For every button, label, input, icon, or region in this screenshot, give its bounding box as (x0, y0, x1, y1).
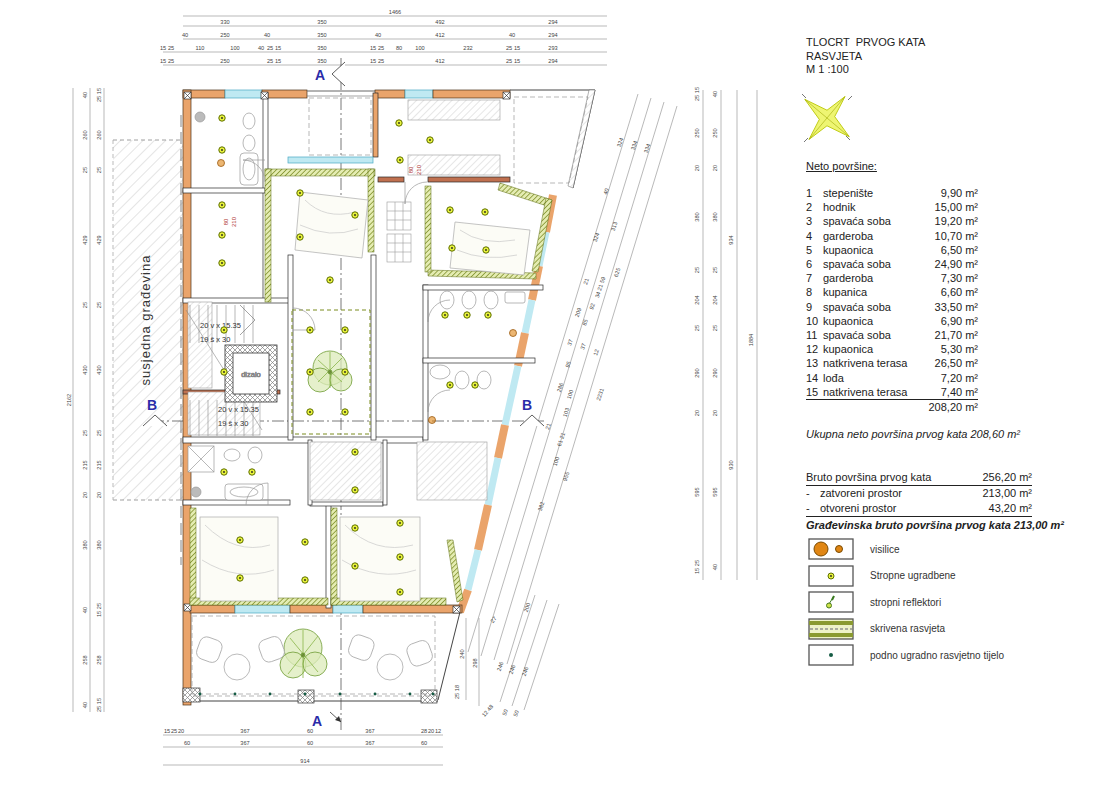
dimension-label: 298 (472, 658, 478, 667)
room-name: lođa (823, 371, 921, 385)
dimension-label: 25 (96, 430, 102, 436)
dimension-label: 12 (435, 728, 441, 734)
dimension-label: 100 (552, 456, 561, 467)
dimension-label: 15 (514, 58, 520, 64)
dimension-label: 429 (82, 235, 88, 244)
dimension-label: 258 (82, 655, 88, 664)
net-areas-table: 1 stepenište 9,90 m² 2 hodnik 15,00 m² 3… (806, 186, 978, 415)
room-area: 19,20 m² (921, 214, 978, 228)
ceiling-light-center (304, 541, 306, 543)
dimension-label: 80 (396, 45, 402, 51)
dimension-label: 293 (548, 45, 557, 51)
ceiling-light-center (221, 149, 223, 151)
room-number: 10 (806, 314, 823, 328)
dimension-label: 260 (96, 130, 102, 139)
dimension-label: 595 (712, 487, 718, 496)
dimension-label: 367 (365, 728, 374, 734)
dimension-label: 290 (712, 368, 718, 377)
ceiling-light-center (223, 329, 225, 331)
dimension-label: 25 (171, 728, 177, 734)
room-name: spavaća soba (823, 328, 921, 342)
dimension-label: 25 (82, 167, 88, 173)
ceiling-light-center (251, 471, 253, 473)
ceiling-light-center (354, 489, 356, 491)
room-area: 7,20 m² (921, 371, 978, 385)
dimension-label: 60 (184, 740, 190, 746)
ceiling-light-center (474, 384, 476, 386)
floor-light-icon (409, 693, 412, 696)
drawing-title-line1: TLOCRT PRVOG KATA (806, 36, 1102, 50)
room-name: kupanica (823, 285, 921, 299)
dimension-label: 294 (548, 58, 557, 64)
dimension-label: 20 (96, 492, 102, 498)
area-row: 1 stepenište 9,90 m² (806, 186, 978, 200)
dimension-label: 15 (275, 58, 281, 64)
room-number: 14 (806, 371, 823, 385)
dimension-label: 210 (416, 164, 422, 175)
dimension-label: 15 (514, 45, 520, 51)
dimension-label: 204 (694, 295, 700, 304)
dimension-label: 294 (548, 32, 557, 38)
net-areas-total-row: 208,20 m² (806, 400, 978, 415)
dimension-label: 250 (694, 128, 700, 137)
area-row: 15 natkrivena terasa 7,40 m² (806, 385, 978, 400)
dimension-label: 20 (712, 165, 718, 171)
dimension-label: 25 (712, 325, 718, 331)
svg-text:19 š x 30: 19 š x 30 (218, 419, 248, 428)
room-area: 7,40 m² (921, 385, 978, 399)
open-space-row: - otvoreni prostor43,20 m² (806, 501, 1032, 517)
dimension-label: 380 (96, 540, 102, 549)
room-area: 6,90 m² (921, 314, 978, 328)
dimension-label: 350 (317, 19, 326, 25)
ceiling-light-center (449, 384, 451, 386)
area-row: 5 kupaonica 6,50 m² (806, 243, 978, 257)
dimension-label: 25 15 (96, 698, 102, 712)
dimension-label: 250 (220, 32, 229, 38)
area-row: 4 garderoba 10,70 m² (806, 229, 978, 243)
dimension-label: 40 (509, 32, 515, 38)
dimension-label: 25 (96, 167, 102, 173)
dimension-label: 15 25 (96, 603, 102, 617)
floor-plan-drawing: { "title_block": {"line1": "TLOCRT PRVOG… (0, 0, 1102, 790)
ceiling-light-center (299, 192, 301, 194)
dimension-label: 324 (592, 232, 601, 243)
ceiling-light-center (354, 214, 356, 216)
dimension-label: 21 (544, 422, 552, 430)
room-name: kupaonica (823, 342, 921, 356)
floor-light-icon (339, 693, 342, 696)
neighbor-label: susjedna građevina (138, 255, 153, 386)
dimension-label: 20 (694, 165, 700, 171)
dimension-label: 25 (694, 325, 700, 331)
room-number: 7 (806, 271, 823, 285)
dimension-label: 12 (592, 348, 600, 356)
dimension-label: 40 (182, 32, 188, 38)
ceiling-light-center (354, 451, 356, 453)
dimension-label: 25 (82, 302, 88, 308)
dimension-label: 40 (82, 92, 88, 98)
dimension-label: 286 (556, 382, 565, 393)
dimension-label: 2162 (66, 394, 72, 406)
dimension-label: 246 (496, 661, 505, 672)
ceiling-light-center (309, 411, 311, 413)
dimension-label: 246 (521, 666, 530, 677)
ceiling-light-center (221, 117, 223, 119)
dimension-label: 25 15 (694, 87, 700, 101)
dimension-label: 15 25 (694, 560, 700, 574)
area-row: 12 kupaonica 5,30 m² (806, 342, 978, 356)
lighting-legend: visilice Stropne ugradbene stropni refle… (808, 536, 1004, 669)
section-b-right: B (522, 397, 532, 413)
dimension-label: 15 (160, 45, 166, 51)
ceiling-light-center (354, 565, 356, 567)
dimension-label: 25 (168, 58, 174, 64)
ceiling-light-center (429, 139, 431, 141)
dimension-label: 382 (537, 501, 546, 512)
closed-space-row: - zatvoreni prostor213,00 m² (806, 486, 1032, 501)
ceiling-light-center (221, 262, 223, 264)
area-row: 7 garderoba 7,30 m² (806, 271, 978, 285)
dimension-label: 25 (712, 267, 718, 273)
dimension-label: 25 (96, 302, 102, 308)
room-area: 6,50 m² (921, 243, 978, 257)
room-name: stepenište (823, 186, 921, 200)
ceiling-light-center (239, 539, 241, 541)
dimension-label: 367 (240, 740, 249, 746)
dimension-label: 25 (378, 58, 384, 64)
dimension-label: 215 (82, 460, 88, 469)
room-number: 5 (806, 243, 823, 257)
dimension-label: 1884 (748, 334, 754, 346)
dimension-label: 92 (588, 302, 596, 310)
room-name: spavaća soba (823, 214, 921, 228)
room-area: 33,50 m² (921, 300, 978, 314)
floor-light-icon (374, 693, 377, 696)
dimension-label: 50 (501, 708, 509, 716)
dimension-label: 20 (178, 728, 184, 734)
drawing-title-line2: RASVJETA (806, 50, 1102, 64)
section-b-left: B (147, 397, 157, 413)
dimension-label: 204 (712, 295, 718, 304)
room-number: 2 (806, 200, 823, 214)
dimension-label: 27 (489, 615, 498, 624)
dimension-label: 930 (728, 460, 734, 469)
pendant-lights-icon (808, 538, 854, 560)
dimension-label: 25 (506, 58, 512, 64)
dimension-label: 492 (435, 19, 444, 25)
dimension-label: 25 15 (96, 88, 102, 102)
room-number: 15 (806, 385, 823, 399)
ceiling-light-center (466, 314, 468, 316)
ceiling-light-center (344, 329, 346, 331)
dimension-label: 914 (300, 758, 309, 764)
ceiling-light-center (487, 314, 489, 316)
area-row: 11 spavaća soba 21,70 m² (806, 328, 978, 342)
floor-light-icon (199, 693, 202, 696)
dimension-label: 100 (566, 389, 575, 400)
dimension-label: 1466 (389, 9, 401, 15)
dimension-label: 430 (82, 365, 88, 374)
ceiling-light-center (485, 249, 487, 251)
dimension-label: 955 (562, 471, 571, 482)
dimension-label: 25 (267, 45, 273, 51)
dimension-label: 350 (317, 32, 326, 38)
dimension-label: 290 (694, 368, 700, 377)
dimension-label: 60 (421, 740, 427, 746)
ceiling-light-center (221, 204, 223, 206)
area-row: 9 spavaća soba 33,50 m² (806, 300, 978, 314)
ceiling-light-center (354, 527, 356, 529)
room-area: 9,90 m² (921, 186, 978, 200)
pendant-light-icon (510, 330, 517, 337)
dimension-label: 25 (506, 45, 512, 51)
legend-item-visilice: visilice (808, 536, 1004, 563)
net-areas-total: 208,20 m² (921, 400, 978, 415)
area-row: 14 lođa 7,20 m² (806, 371, 978, 385)
drawing-scale: M 1 :100 (806, 63, 1102, 77)
floor-light-icon (269, 693, 272, 696)
dimension-label: 25 (694, 267, 700, 273)
dimension-label: 380 (712, 212, 718, 221)
dimension-label: 25 18 (454, 685, 460, 699)
info-panel: TLOCRT PRVOG KATA RASVJETA M 1 :100 Neto… (806, 36, 1102, 77)
elevator-label: dizalo (241, 370, 261, 379)
dimension-label: 60 (307, 740, 313, 746)
dimension-label: 15 (370, 58, 376, 64)
dimension-label: 412 (435, 32, 444, 38)
dimension-label: 61 21 (556, 432, 566, 447)
ceiling-recessed-light-icon (808, 565, 854, 587)
dimension-label: 15 (370, 45, 376, 51)
sparkle-icon (792, 88, 862, 150)
dimension-label: 20 (428, 728, 434, 734)
legend-label: podno ugradno rasvjetno tijelo (870, 649, 1004, 663)
dimension-label: 934 (728, 235, 734, 244)
room-name: kupaonica (823, 243, 921, 257)
dimension-label: 21 (582, 277, 590, 285)
legend-label: Stropne ugradbene (870, 569, 956, 583)
ceiling-light-center (309, 329, 311, 331)
dimension-label: 15 (164, 728, 170, 734)
ceiling-light-center (239, 577, 241, 579)
dimension-label: 294 (548, 19, 557, 25)
svg-text:20 v x 15.35: 20 v x 15.35 (200, 321, 241, 330)
ceiling-light-center (449, 209, 451, 211)
room-number: 6 (806, 257, 823, 271)
gross-area-row: Bruto površina prvog kata256,20 m² (806, 470, 1032, 486)
room-number: 11 (806, 328, 823, 342)
ceiling-light-center (304, 579, 306, 581)
ceiling-light-center (329, 279, 331, 281)
dimension-label: 20 (694, 410, 700, 416)
floor-light-icon (432, 693, 435, 696)
legend-label: skrivena rasvjeta (870, 622, 945, 636)
dimension-label: 20 (712, 410, 718, 416)
room-name: natkrivena terasa (823, 385, 921, 399)
room-number: 1 (806, 186, 823, 200)
room-area: 26,50 m² (921, 356, 978, 370)
dimension-label: 367 (240, 728, 249, 734)
section-a-bottom: A (312, 713, 322, 729)
dimension-label: 37 (579, 342, 587, 350)
total-net-area-note: Ukupna neto površina prvog kata 208,60 m… (806, 428, 1102, 442)
room-number: 3 (806, 214, 823, 228)
dimension-label: 258 (96, 655, 102, 664)
dimension-label: 215 (96, 460, 102, 469)
room-name: garderoba (823, 271, 921, 285)
dimension-label: 50 (512, 709, 520, 717)
title-block: TLOCRT PRVOG KATA RASVJETA M 1 :100 (806, 36, 1102, 77)
room-area: 10,70 m² (921, 229, 978, 243)
dimension-label: 40 (712, 564, 718, 570)
dimension-label: 210 (231, 216, 237, 227)
floor-recessed-light-icon (808, 644, 854, 666)
dimension-label: 25 (82, 430, 88, 436)
room-area: 24,90 m² (921, 257, 978, 271)
dimension-label: 200 (523, 602, 532, 613)
ceiling-light-center (444, 314, 446, 316)
dimension-label: 412 (435, 58, 444, 64)
dimension-label: 15 (160, 58, 166, 64)
dimension-label: 37 (566, 338, 574, 346)
room-area: 6,60 m² (921, 285, 978, 299)
legend-item-stropni-reflektori: stropni reflektori (808, 589, 1004, 616)
svg-text:20 v x 15.35: 20 v x 15.35 (218, 405, 259, 414)
neighbor-building: susjedna građevina (113, 115, 183, 565)
ceiling-spotlight-icon (808, 591, 854, 613)
dimension-label: 209 (574, 307, 583, 318)
dimension-label: 380 (694, 212, 700, 221)
room-number: 8 (806, 285, 823, 299)
dimension-label: 334 (643, 143, 652, 154)
room-area: 21,70 m² (921, 328, 978, 342)
dimension-label: 60 (307, 728, 313, 734)
dimension-label: 40 (602, 187, 610, 195)
room-name: garderoba (823, 229, 921, 243)
room-area: 15,00 m² (921, 200, 978, 214)
hidden-lighting-icon (808, 618, 854, 640)
room-number: 4 (806, 229, 823, 243)
dimension-label: 110 (196, 45, 205, 51)
dimension-label: 324 (616, 137, 625, 148)
legend-item-skrivena-rasvjeta: skrivena rasvjeta (808, 616, 1004, 643)
dimension-label: 20 (82, 492, 88, 498)
room-number: 13 (806, 356, 823, 370)
dimension-label: 232 (463, 45, 472, 51)
dimension-label: 430 (96, 365, 102, 374)
area-row: 10 kupaonica 6,90 m² (806, 314, 978, 328)
floor-plan-svg: susjedna građevina (0, 0, 800, 790)
dimension-label: 100 (415, 45, 424, 51)
dimension-label: 334 (630, 140, 639, 151)
ceiling-light-center (344, 371, 346, 373)
net-areas-heading: Neto površine: (806, 160, 877, 174)
area-row: 8 kupanica 6,60 m² (806, 285, 978, 299)
dimension-label: 40 (375, 32, 381, 38)
area-row: 13 natkrivena terasa 26,50 m² (806, 356, 978, 370)
dimension-label: 40 (258, 45, 264, 51)
dimension-label: 25 (267, 58, 273, 64)
legend-item-podno-ugradno: podno ugradno rasvjetno tijelo (808, 642, 1004, 669)
dimension-label: 40 (264, 32, 270, 38)
ceiling-light-center (223, 371, 225, 373)
ceiling-light-center (223, 471, 225, 473)
dimension-label: 85 (581, 318, 589, 326)
dimension-label: 80 (408, 166, 414, 173)
section-a-top: A (315, 67, 325, 83)
dimension-label: 350 (317, 58, 326, 64)
ceiling-light-center (451, 247, 453, 249)
dimension-label: 25 (168, 45, 174, 51)
construction-gross-area: Građevinska bruto površina prvog kata 21… (806, 519, 1032, 533)
ceiling-light-center (221, 234, 223, 236)
legend-label: stropni reflektori (870, 596, 941, 610)
ceiling-light-center (399, 591, 401, 593)
dimension-label: 350 (317, 45, 326, 51)
dimension-label: 625 (613, 267, 622, 278)
dimension-label: 80 (223, 218, 229, 225)
ceiling-light-center (344, 411, 346, 413)
dimension-label: 100 (230, 45, 239, 51)
dimension-label: 429 (96, 235, 102, 244)
room-name: spavaća soba (823, 257, 921, 271)
dimension-label: 250 (712, 128, 718, 137)
floor-light-icon (234, 693, 237, 696)
dimension-label: 250 (220, 58, 229, 64)
area-row: 3 spavaća soba 19,20 m² (806, 214, 978, 228)
dimension-label: 595 (694, 487, 700, 496)
dimension-label: 380 (82, 540, 88, 549)
dimension-label: 12 48 (481, 703, 495, 718)
dimension-label: 15 (275, 45, 281, 51)
ceiling-light-center (309, 371, 311, 373)
ceiling-light-center (484, 211, 486, 213)
pendant-light-icon (218, 160, 225, 167)
room-name: kupaonica (823, 314, 921, 328)
gross-area-block: Bruto površina prvog kata256,20 m² - zat… (806, 470, 1032, 533)
room-area: 5,30 m² (921, 342, 978, 356)
light-symbol (792, 88, 862, 154)
room-name: natkrivena terasa (823, 356, 921, 370)
dimension-label: 240 (459, 649, 465, 658)
area-row: 2 hodnik 15,00 m² (806, 200, 978, 214)
dimension-label: 330 (220, 19, 229, 25)
dimension-label: 40 (712, 91, 718, 97)
ceiling-light-center (399, 159, 401, 161)
dimension-label: 40 (82, 607, 88, 613)
room-number: 12 (806, 342, 823, 356)
legend-label: visilice (870, 543, 899, 557)
dimension-label: 103 (562, 407, 571, 418)
legend-item-stropne-ugradbene: Stropne ugradbene (808, 563, 1004, 590)
dimension-label: 260 (82, 130, 88, 139)
ceiling-light-center (398, 122, 400, 124)
floor-light-icon (304, 693, 307, 696)
dimension-label: 28 (421, 728, 427, 734)
room-number: 9 (806, 300, 823, 314)
room-area: 7,30 m² (921, 271, 978, 285)
ceiling-light-center (399, 556, 401, 558)
room-name: spavaća soba (823, 300, 921, 314)
ceiling-light-center (299, 236, 301, 238)
dimension-label: 246 (508, 664, 517, 675)
ceiling-light-center (399, 522, 401, 524)
dimension-label: 313 (610, 221, 619, 232)
area-row: 6 spavaća soba 24,90 m² (806, 257, 978, 271)
dimension-label: 2231 (595, 388, 605, 402)
svg-text:19 š x 30: 19 š x 30 (200, 335, 230, 344)
